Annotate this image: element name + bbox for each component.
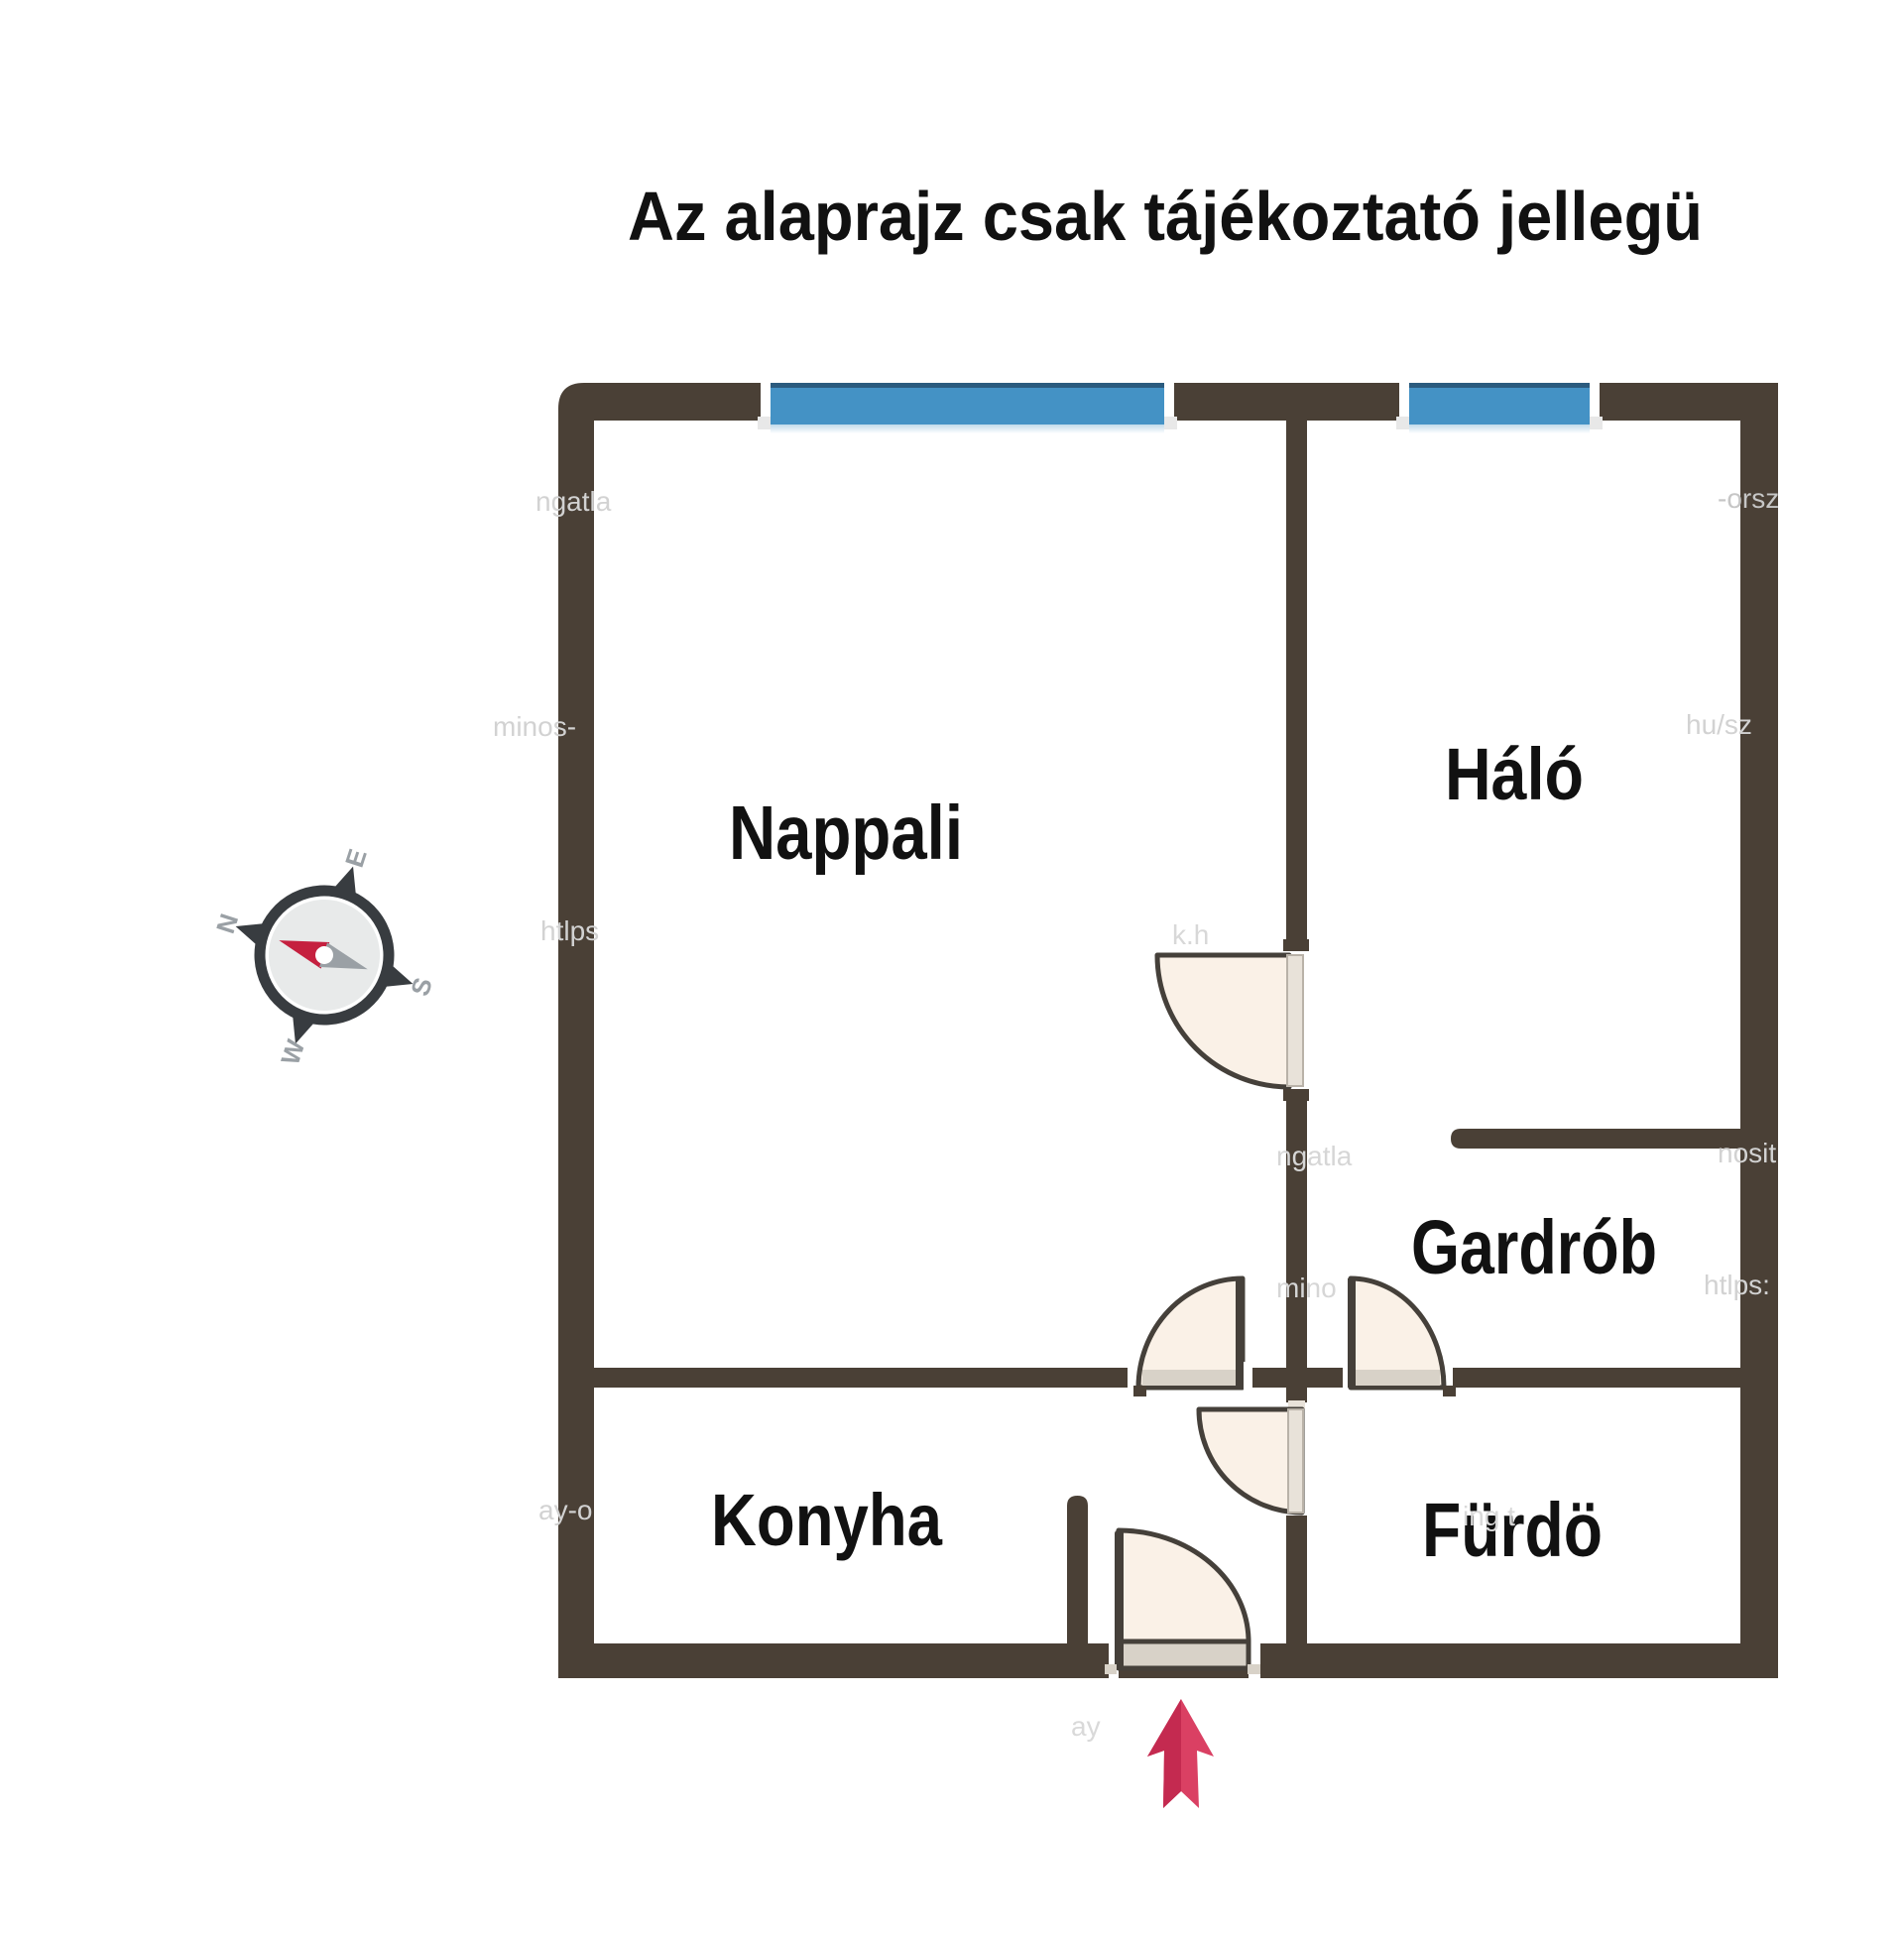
svg-text:ngatla: ngatla bbox=[535, 486, 612, 517]
svg-text:mino: mino bbox=[1276, 1273, 1337, 1303]
svg-text:Nappali: Nappali bbox=[729, 790, 963, 876]
svg-text:ing t: ing t bbox=[1463, 1501, 1515, 1531]
svg-text:ay-o: ay-o bbox=[538, 1495, 592, 1525]
svg-text:W: W bbox=[275, 1035, 310, 1068]
svg-text:Háló: Háló bbox=[1445, 733, 1584, 815]
svg-text:Konyha: Konyha bbox=[711, 1479, 943, 1561]
svg-text:Gardrób: Gardrób bbox=[1411, 1205, 1657, 1290]
svg-text:htlps:: htlps: bbox=[1704, 1270, 1770, 1300]
svg-text:ngatla: ngatla bbox=[1276, 1141, 1353, 1171]
svg-text:k.h: k.h bbox=[1172, 919, 1209, 950]
svg-text:N: N bbox=[210, 910, 244, 937]
svg-text:nosit: nosit bbox=[1718, 1138, 1776, 1168]
svg-text:hu/sz: hu/sz bbox=[1686, 709, 1752, 740]
svg-text:E: E bbox=[339, 845, 373, 871]
svg-text:S: S bbox=[405, 974, 438, 1000]
svg-text:minos-: minos- bbox=[493, 711, 576, 742]
svg-text:-orsz: -orsz bbox=[1718, 483, 1779, 514]
svg-text:Az alaprajz csak tájékoztató j: Az alaprajz csak tájékoztató jellegü bbox=[628, 178, 1703, 255]
svg-text:htlps: htlps bbox=[540, 915, 599, 946]
svg-text:ay: ay bbox=[1071, 1711, 1101, 1742]
